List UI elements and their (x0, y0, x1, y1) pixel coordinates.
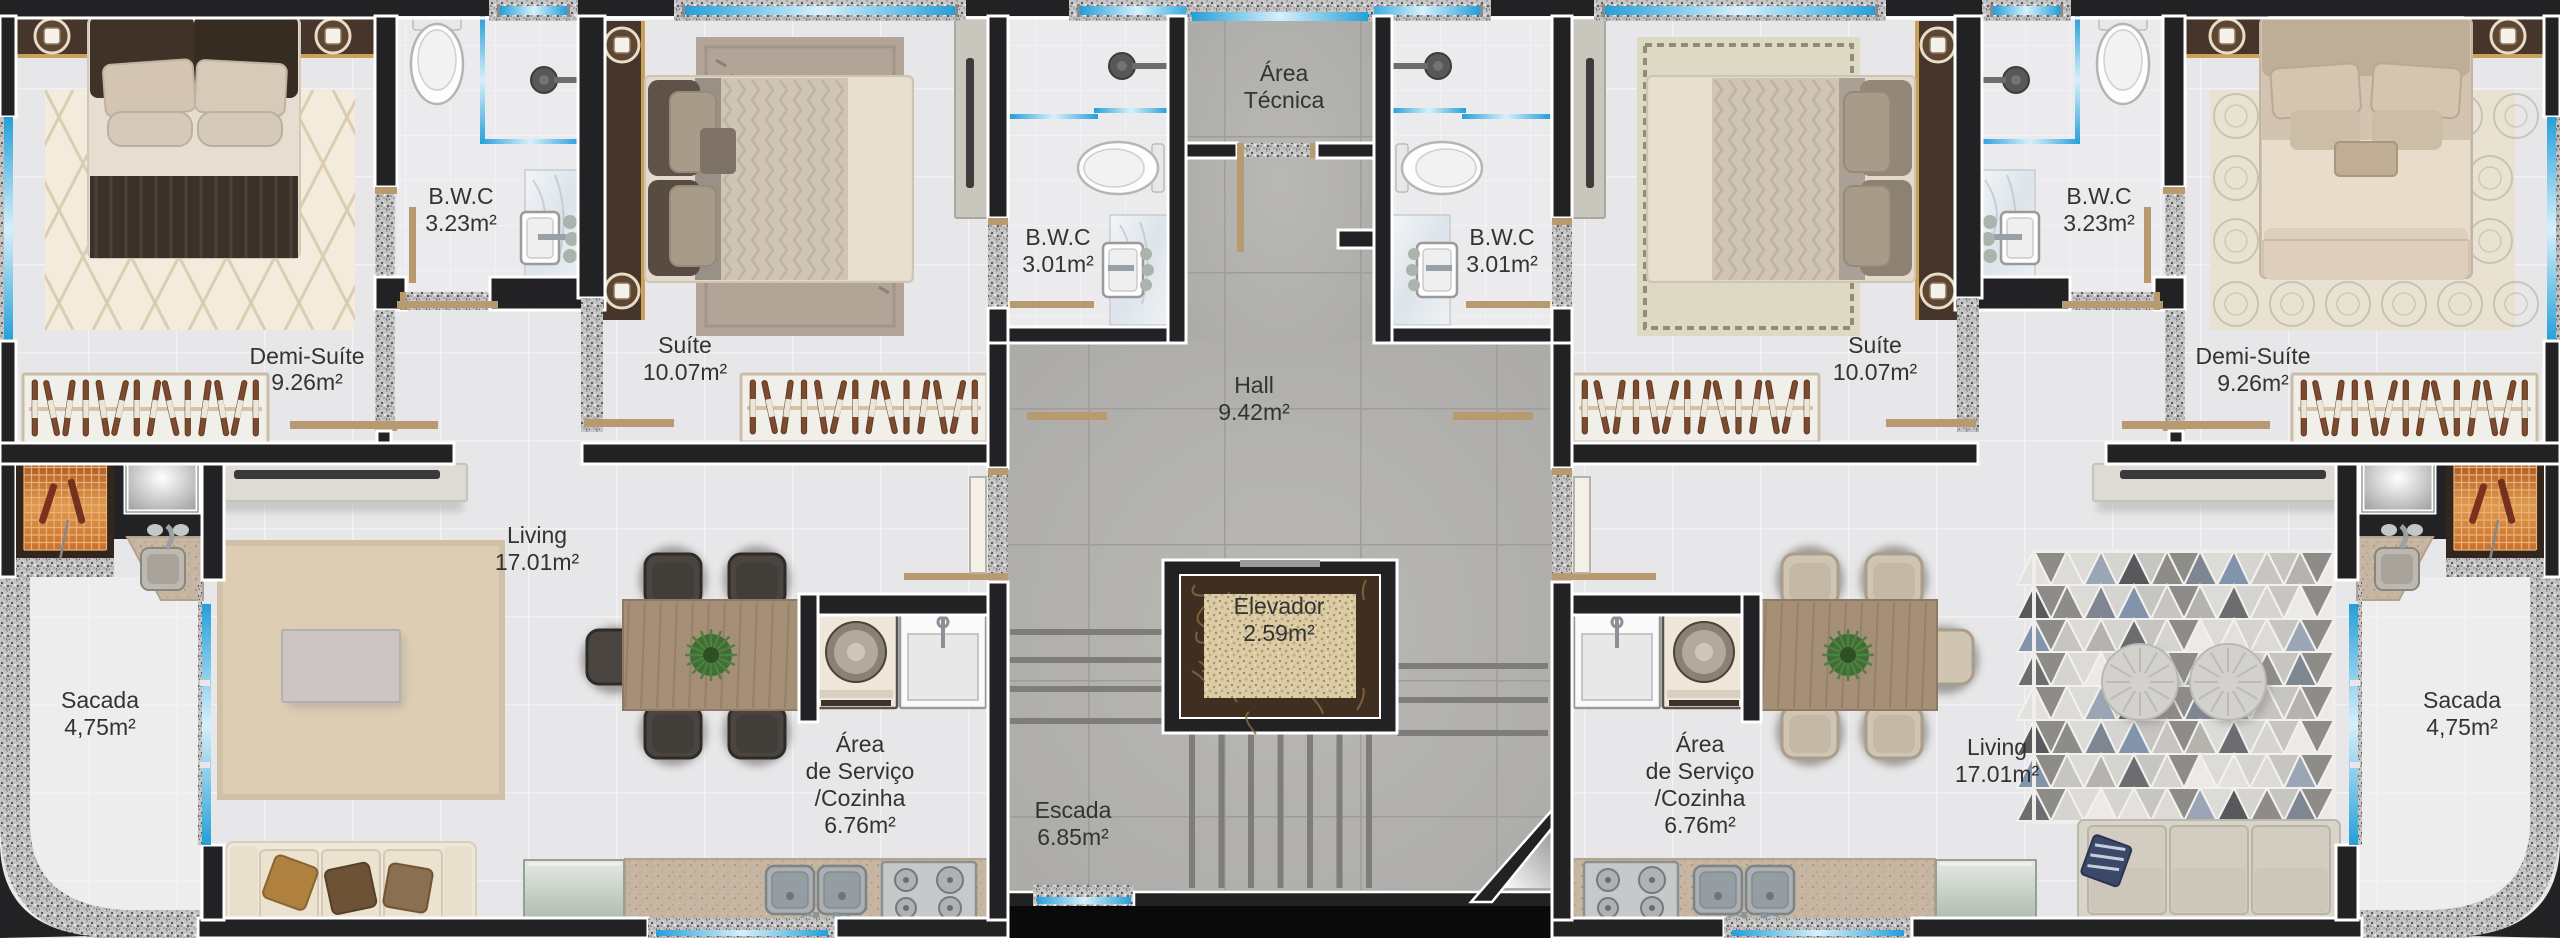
svg-text:Sacada: Sacada (61, 687, 139, 713)
svg-text:Escada: Escada (1035, 797, 1112, 823)
svg-text:6.76m²: 6.76m² (824, 812, 896, 838)
svg-text:3.01m²: 3.01m² (1466, 251, 1538, 277)
svg-text:3.23m²: 3.23m² (425, 210, 497, 236)
svg-text:9.42m²: 9.42m² (1218, 399, 1290, 425)
svg-text:2.59m²: 2.59m² (1243, 620, 1315, 646)
svg-text:de Serviço: de Serviço (1646, 758, 1755, 784)
svg-text:Hall: Hall (1234, 372, 1274, 398)
svg-text:B.W.C: B.W.C (1025, 224, 1090, 250)
svg-text:Área: Área (836, 731, 885, 757)
svg-text:Suíte: Suíte (1848, 332, 1902, 358)
svg-text:6.76m²: 6.76m² (1664, 812, 1736, 838)
svg-text:/Cozinha: /Cozinha (815, 785, 906, 811)
svg-text:Técnica: Técnica (1244, 87, 1325, 113)
svg-text:3.01m²: 3.01m² (1022, 251, 1094, 277)
svg-text:Área: Área (1676, 731, 1725, 757)
svg-text:B.W.C: B.W.C (428, 183, 493, 209)
svg-text:de Serviço: de Serviço (806, 758, 915, 784)
svg-text:Elevador: Elevador (1234, 593, 1325, 619)
svg-text:3.23m²: 3.23m² (2063, 210, 2135, 236)
svg-text:Sacada: Sacada (2423, 687, 2501, 713)
svg-text:6.85m²: 6.85m² (1037, 824, 1109, 850)
svg-text:B.W.C: B.W.C (2066, 183, 2131, 209)
svg-text:Suíte: Suíte (658, 332, 712, 358)
svg-text:9.26m²: 9.26m² (271, 369, 343, 395)
svg-text:Demi-Suíte: Demi-Suíte (249, 343, 364, 369)
svg-text:17.01m²: 17.01m² (1955, 761, 2040, 787)
svg-text:B.W.C: B.W.C (1469, 224, 1534, 250)
svg-text:4,75m²: 4,75m² (2426, 714, 2498, 740)
svg-text:9.26m²: 9.26m² (2217, 370, 2289, 396)
svg-text:10.07m²: 10.07m² (1833, 359, 1918, 385)
svg-text:Área: Área (1260, 60, 1309, 86)
svg-text:Living: Living (507, 522, 567, 548)
svg-text:4,75m²: 4,75m² (64, 714, 136, 740)
svg-text:Living: Living (1967, 734, 2027, 760)
svg-text:Demi-Suíte: Demi-Suíte (2195, 343, 2310, 369)
svg-text:17.01m²: 17.01m² (495, 549, 580, 575)
svg-text:/Cozinha: /Cozinha (1655, 785, 1746, 811)
svg-text:10.07m²: 10.07m² (643, 359, 728, 385)
